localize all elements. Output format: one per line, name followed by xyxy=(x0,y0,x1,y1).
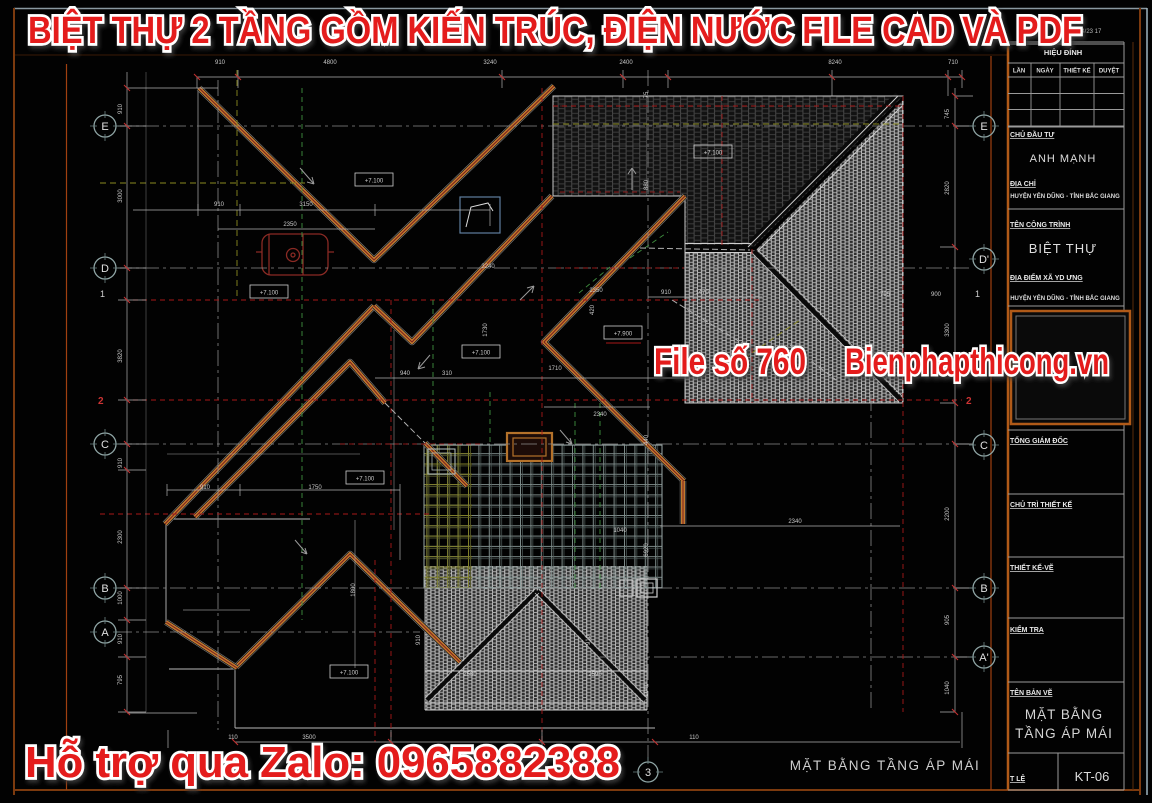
svg-text:110: 110 xyxy=(689,735,699,741)
svg-text:75: 75 xyxy=(644,91,650,98)
svg-text:+7.100: +7.100 xyxy=(365,179,384,185)
svg-text:710: 710 xyxy=(948,60,959,66)
svg-text:+7.100: +7.100 xyxy=(356,477,375,483)
svg-text:MẶT BẰNG: MẶT BẰNG xyxy=(1025,707,1103,722)
svg-text:910: 910 xyxy=(118,633,124,644)
svg-text:HUYỆN YÊN DŨNG - TỈNH BẮC GIAN: HUYỆN YÊN DŨNG - TỈNH BẮC GIANG xyxy=(1010,294,1120,302)
svg-text:1730: 1730 xyxy=(483,323,489,337)
svg-text:Hỗ trợ qua Zalo: 0965882388: Hỗ trợ qua Zalo: 0965882388 xyxy=(25,737,620,787)
svg-text:T LỆ: T LỆ xyxy=(1010,774,1025,783)
svg-text:1040: 1040 xyxy=(644,683,650,697)
svg-text:2590: 2590 xyxy=(588,672,602,678)
svg-text:900: 900 xyxy=(931,292,942,298)
svg-text:+7.100: +7.100 xyxy=(704,151,723,157)
svg-text:940: 940 xyxy=(400,371,411,377)
svg-text:420: 420 xyxy=(590,304,596,315)
svg-text:MẶT BẰNG TẦNG ÁP MÁI: MẶT BẰNG TẦNG ÁP MÁI xyxy=(790,758,981,773)
svg-text:2200: 2200 xyxy=(945,507,951,521)
svg-text:D: D xyxy=(101,263,109,275)
svg-text:ĐỊA CHỈ: ĐỊA CHỈ xyxy=(1010,179,1036,188)
svg-text:BIỆT THỰ: BIỆT THỰ xyxy=(1029,241,1097,256)
svg-text:795: 795 xyxy=(880,292,891,298)
svg-text:D': D' xyxy=(979,254,989,266)
svg-text:3150: 3150 xyxy=(299,202,313,208)
svg-text:LẦN: LẦN xyxy=(1013,68,1025,75)
svg-text:TÊN CÔNG TRÌNH: TÊN CÔNG TRÌNH xyxy=(1010,220,1070,229)
svg-text:1750: 1750 xyxy=(308,485,322,491)
svg-text:TẦNG ÁP MÁI: TẦNG ÁP MÁI xyxy=(1015,726,1113,741)
svg-text:2350: 2350 xyxy=(589,288,603,294)
svg-text:1040: 1040 xyxy=(945,681,951,695)
svg-text:1470: 1470 xyxy=(695,290,709,296)
svg-text:2820: 2820 xyxy=(945,181,951,195)
svg-text:NGÀY: NGÀY xyxy=(1036,68,1053,75)
svg-text:A: A xyxy=(101,627,109,639)
svg-text:1: 1 xyxy=(100,289,105,299)
svg-text:ĐỊA ĐIỂM XÃ YD ƯNG: ĐỊA ĐIỂM XÃ YD ƯNG xyxy=(1010,273,1083,282)
svg-text:880: 880 xyxy=(644,179,650,190)
svg-text:C: C xyxy=(101,439,109,451)
svg-text:+7.100: +7.100 xyxy=(260,291,279,297)
svg-text:4800: 4800 xyxy=(323,60,337,66)
svg-text:440: 440 xyxy=(644,434,650,445)
svg-text:File số 760: File số 760 xyxy=(654,341,806,382)
svg-text:+7.100: +7.100 xyxy=(472,351,491,357)
svg-text:910: 910 xyxy=(586,634,592,645)
svg-text:910: 910 xyxy=(118,103,124,114)
svg-text:+7.900: +7.900 xyxy=(614,332,633,338)
svg-text:2340: 2340 xyxy=(593,412,607,418)
svg-text:+7.100: +7.100 xyxy=(340,671,359,677)
svg-text:2: 2 xyxy=(98,396,104,407)
svg-text:2580: 2580 xyxy=(463,672,477,678)
svg-text:3240: 3240 xyxy=(481,264,495,270)
svg-text:910: 910 xyxy=(200,485,211,491)
svg-text:1000: 1000 xyxy=(118,591,124,605)
svg-text:2: 2 xyxy=(966,396,972,407)
svg-text:910: 910 xyxy=(215,60,226,66)
svg-text:2350: 2350 xyxy=(283,222,297,228)
svg-text:795: 795 xyxy=(118,674,124,685)
svg-text:KIỂM TRA: KIỂM TRA xyxy=(1010,625,1044,634)
svg-text:BIỆT THỰ 2 TẦNG GỒM KIẾN TRÚC,: BIỆT THỰ 2 TẦNG GỒM KIẾN TRÚC, ĐIỆN NƯỚC… xyxy=(28,8,1082,52)
svg-text:910: 910 xyxy=(416,634,422,645)
svg-text:KT-06: KT-06 xyxy=(1075,769,1110,784)
svg-text:1710: 1710 xyxy=(548,366,562,372)
svg-text:3300: 3300 xyxy=(945,323,951,337)
svg-text:DUYỆT: DUYỆT xyxy=(1099,67,1120,75)
svg-text:1: 1 xyxy=(975,289,980,299)
svg-text:3000: 3000 xyxy=(118,189,124,203)
svg-text:2300: 2300 xyxy=(118,530,124,544)
svg-text:E: E xyxy=(101,121,108,133)
svg-text:8240: 8240 xyxy=(828,60,842,66)
svg-text:910: 910 xyxy=(118,457,124,468)
svg-text:A': A' xyxy=(979,652,988,664)
svg-text:745: 745 xyxy=(945,108,951,119)
svg-text:910: 910 xyxy=(661,290,672,296)
svg-text:2400: 2400 xyxy=(619,60,633,66)
svg-text:905: 905 xyxy=(945,614,951,625)
svg-text:910: 910 xyxy=(214,202,225,208)
svg-text:THIẾT KẾ: THIẾT KẾ xyxy=(1063,68,1090,75)
svg-text:B: B xyxy=(101,583,108,595)
svg-text:310: 310 xyxy=(442,371,453,377)
svg-text:1800: 1800 xyxy=(351,583,357,597)
svg-text:2340: 2340 xyxy=(788,519,802,525)
svg-text:3: 3 xyxy=(645,767,651,779)
svg-text:6920: 6920 xyxy=(644,543,650,557)
svg-text:1040: 1040 xyxy=(613,528,627,534)
svg-text:HUYỆN YÊN DŨNG - TỈNH BẮC GIAN: HUYỆN YÊN DŨNG - TỈNH BẮC GIANG xyxy=(1010,192,1120,200)
svg-text:Bienphapthicong.vn: Bienphapthicong.vn xyxy=(845,341,1109,382)
svg-text:B: B xyxy=(980,583,987,595)
svg-text:ANH MẠNH: ANH MẠNH xyxy=(1030,153,1097,165)
svg-text:3820: 3820 xyxy=(118,349,124,363)
svg-text:E: E xyxy=(980,121,987,133)
svg-text:TÊN BẢN VẼ: TÊN BẢN VẼ xyxy=(1010,688,1053,697)
svg-text:3240: 3240 xyxy=(483,60,497,66)
svg-text:C: C xyxy=(980,440,988,452)
